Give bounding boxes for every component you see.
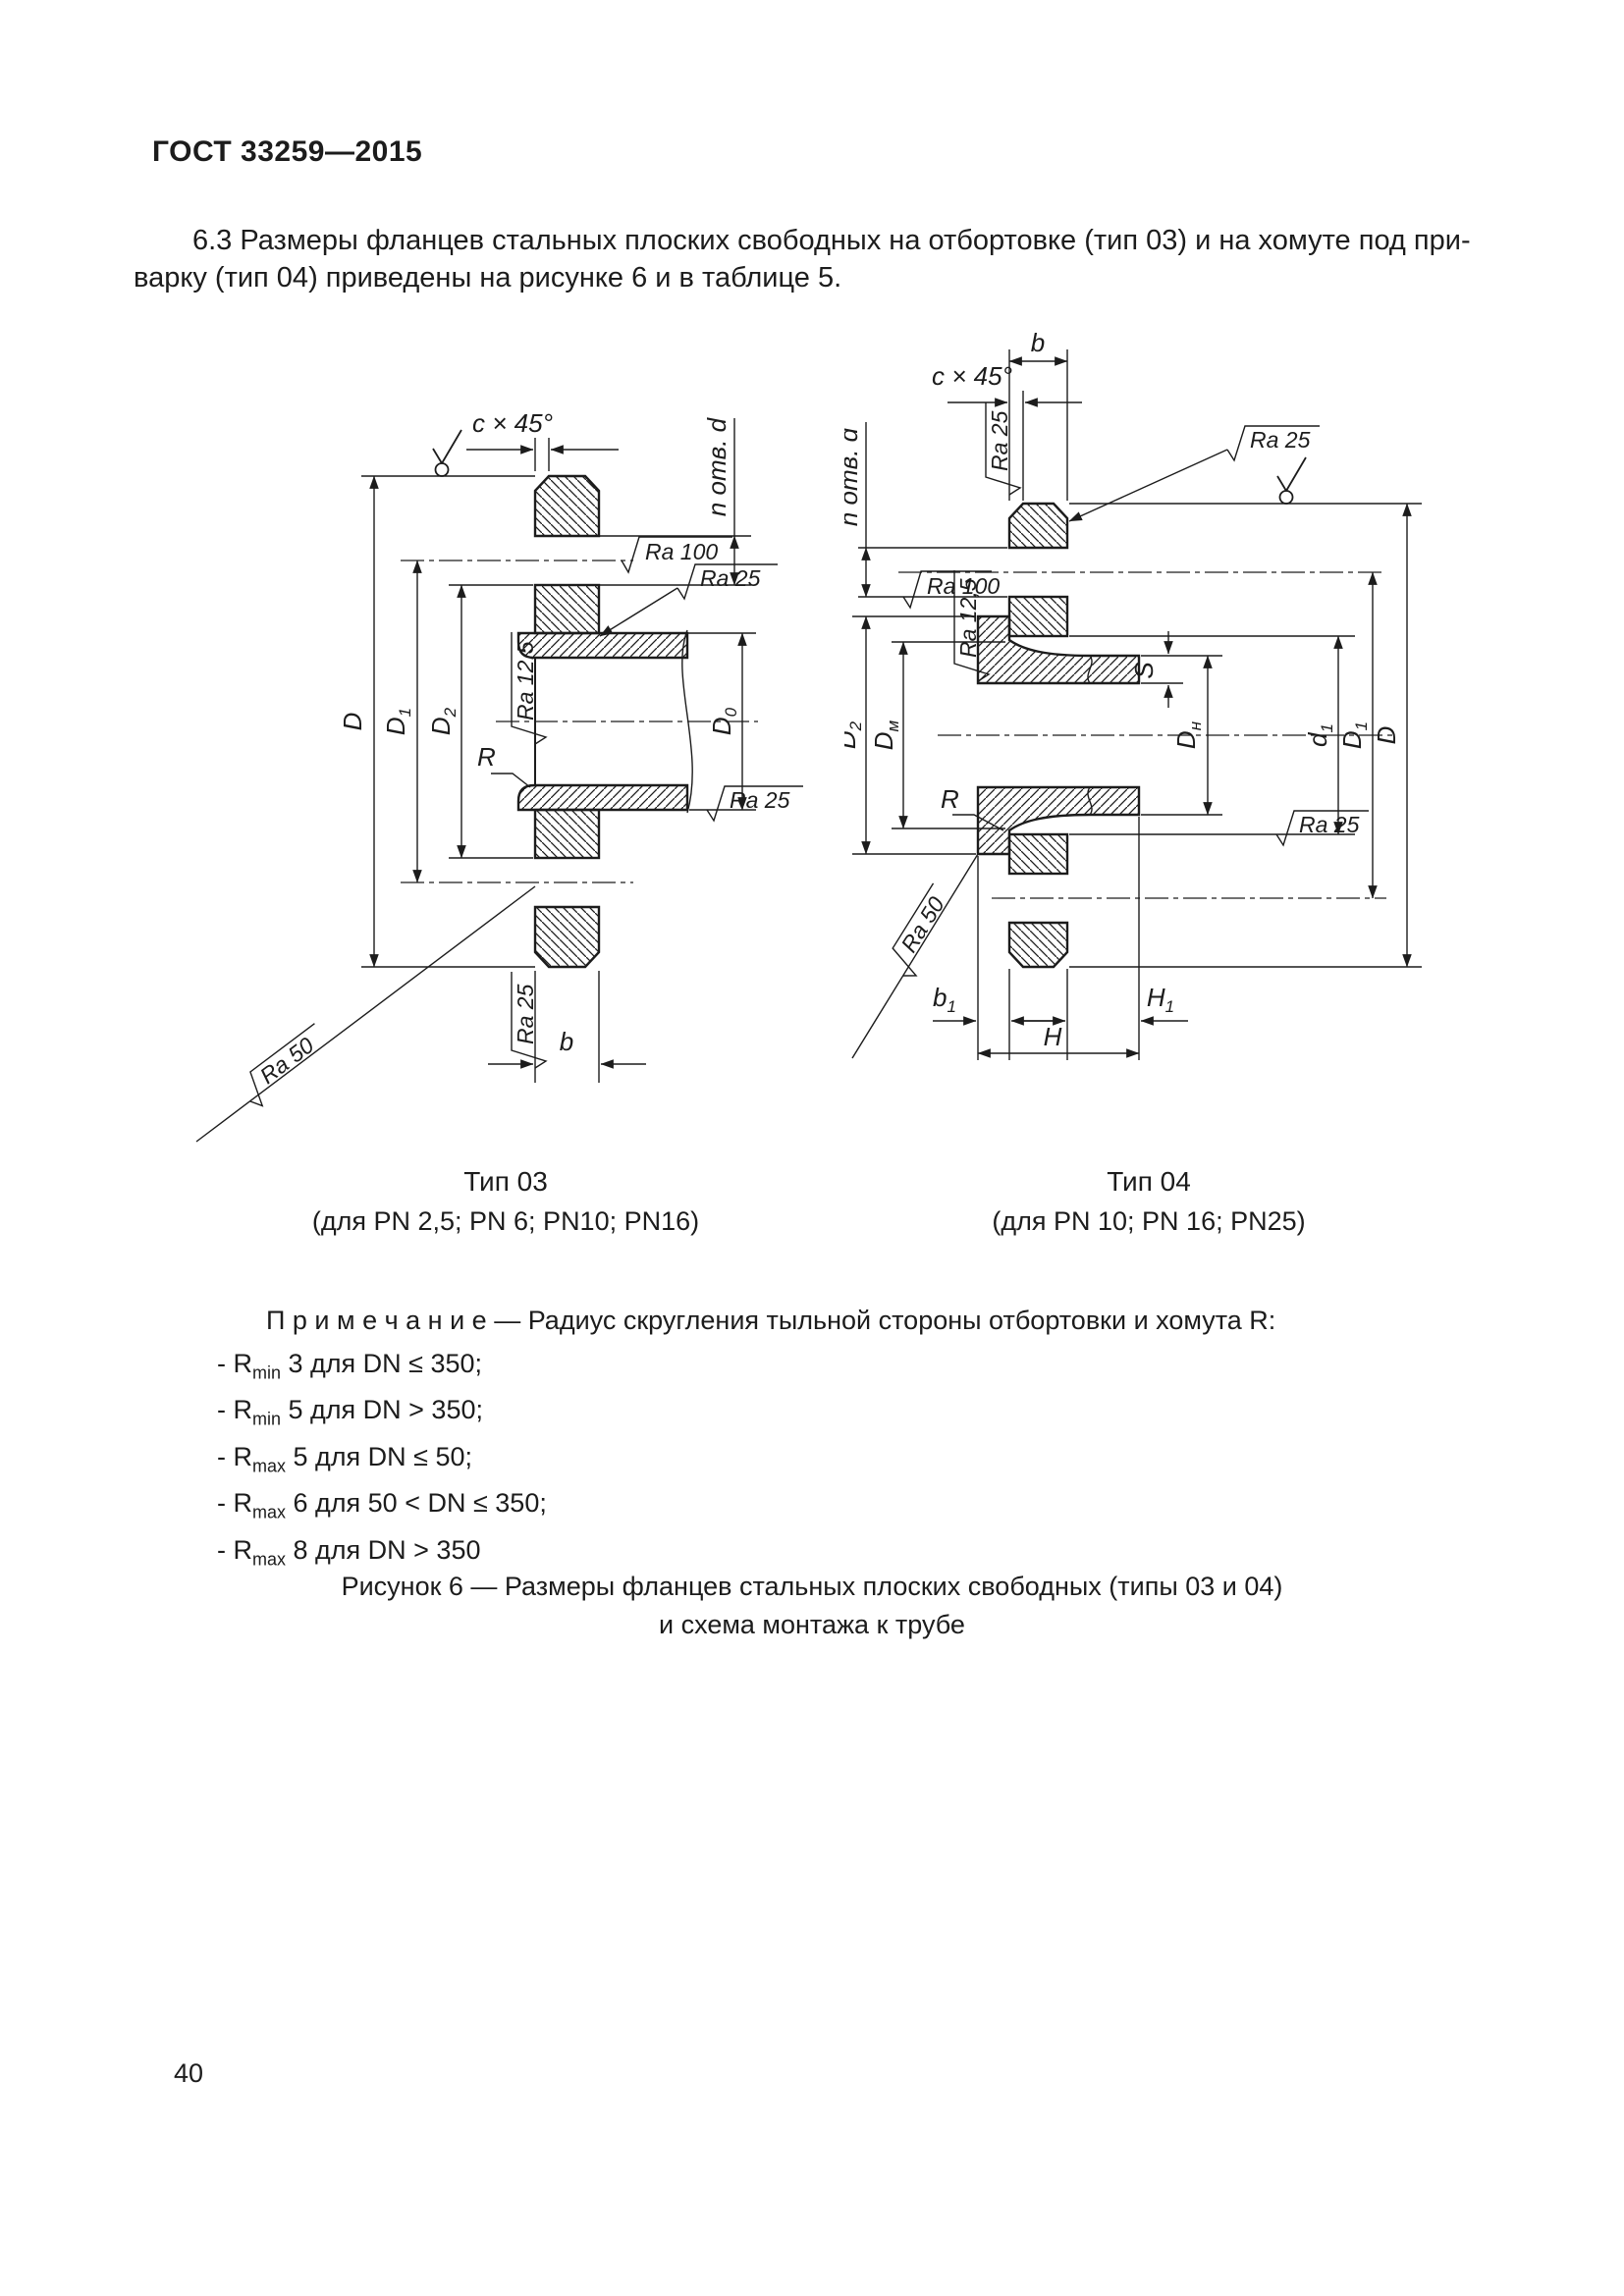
- dim-label-holes: n отв. d: [844, 426, 863, 526]
- ra25-flag-bottom: Ra 25: [512, 972, 546, 1068]
- note-item: - Rmin 3 для DN ≤ 350;: [217, 1345, 1275, 1391]
- type03-caption: Тип 03 (для PN 2,5; PN 6; PN10; PN16): [182, 1162, 830, 1241]
- dim-label-D1: D1: [381, 708, 414, 735]
- ra25-label-topright: Ra 25: [1250, 427, 1311, 453]
- dim-label-H: H: [1044, 1022, 1062, 1051]
- type04-title: Тип 04: [844, 1162, 1453, 1201]
- paragraph-line-2: варку (тип 04) приведены на рисунке 6 и …: [134, 259, 1508, 296]
- document-page: ГОСТ 33259—2015 6.3 Размеры фланцев стал…: [0, 0, 1624, 2296]
- type03-subtitle: (для PN 2,5; PN 6; PN10; PN16): [182, 1201, 830, 1241]
- dim-label-S: S: [1129, 662, 1159, 679]
- paragraph-6-3: 6.3 Размеры фланцев стальных плоских сво…: [134, 222, 1508, 296]
- dim-label-chamfer: c × 45°: [932, 361, 1012, 391]
- figure-caption: Рисунок 6 — Размеры фланцев стальных пло…: [0, 1568, 1624, 1644]
- dim-label-Dn: Dн: [1171, 721, 1205, 749]
- dimension-labels: D D1 d1 Dн Dм D2 S c × 45° b n отв. d R …: [844, 328, 1401, 1051]
- dim-label-b: b: [560, 1027, 573, 1056]
- roughness-marks: Ra 100 Ra 25 Ra 12,5 Ra 25 Ra 50: [196, 430, 803, 1142]
- dim-label-D2: D2: [844, 721, 865, 749]
- no-machining-icon: [1277, 457, 1306, 504]
- ra100-label: Ra 100: [645, 539, 718, 564]
- note-item: - Rmax 5 для DN ≤ 50;: [217, 1438, 1275, 1484]
- dim-label-chamfer: c × 45°: [472, 408, 553, 438]
- dim-label-D1: D1: [1337, 721, 1371, 749]
- dim-label-holes: n отв. d: [702, 416, 731, 516]
- dim-label-d1: d1: [1303, 723, 1336, 747]
- ra50-leader-line: [196, 886, 535, 1142]
- figure-caption-line-2: и схема монтажа к трубе: [0, 1606, 1624, 1644]
- dim-label-R: R: [941, 784, 959, 814]
- note-item: - Rmax 6 для 50 < DN ≤ 350;: [217, 1484, 1275, 1530]
- paragraph-line-1: 6.3 Размеры фланцев стальных плоских сво…: [134, 222, 1508, 259]
- type04-subtitle: (для PN 10; PN 16; PN25): [844, 1201, 1453, 1241]
- ra125-label: Ra 12,5: [955, 578, 981, 658]
- note-heading: П р и м е ч а н и е — Радиус скругления …: [266, 1306, 1275, 1336]
- ra25-label-mid: Ra 25: [1299, 812, 1360, 837]
- type03-title: Тип 03: [182, 1162, 830, 1201]
- dim-label-b: b: [1031, 328, 1045, 357]
- ra25-label-lower: Ra 25: [730, 787, 790, 813]
- type03-figure: Ra 100 Ra 25 Ra 12,5 Ra 25 Ra 50: [182, 312, 830, 1241]
- ra25-label-topleft: Ra 25: [987, 410, 1012, 471]
- dim-label-H1: H1: [1147, 983, 1174, 1016]
- type04-figure: Ra 100 Ra 25 Ra 25 Ra 12,5 Ra 25: [844, 312, 1453, 1241]
- page-number: 40: [174, 2058, 203, 2089]
- figure-6: Ra 100 Ra 25 Ra 12,5 Ra 25 Ra 50: [182, 312, 1453, 1241]
- dim-label-R: R: [477, 742, 496, 772]
- ra25-flag-topleft: Ra 25: [986, 402, 1020, 495]
- ra125-label: Ra 12,5: [513, 641, 538, 721]
- ra25-leader: [600, 588, 677, 636]
- note-block: П р и м е ч а н и е — Радиус скругления …: [217, 1306, 1275, 1577]
- dim-label-Dm: Dм: [869, 720, 902, 750]
- ra50-flag: Ra 50: [237, 1024, 336, 1110]
- ra25-leader: [1069, 450, 1227, 521]
- note-item: - Rmin 5 для DN > 350;: [217, 1391, 1275, 1437]
- figure-caption-line-1: Рисунок 6 — Размеры фланцев стальных пло…: [0, 1568, 1624, 1606]
- dim-label-b1: b1: [933, 983, 956, 1016]
- roughness-marks: Ra 100 Ra 25 Ra 25 Ra 12,5 Ra 25: [852, 402, 1369, 1058]
- dim-label-D0: D0: [707, 707, 740, 735]
- r-leader: [491, 774, 530, 787]
- dimension-lines: [852, 349, 1422, 1060]
- dim-label-D: D: [1372, 726, 1401, 745]
- type04-caption: Тип 04 (для PN 10; PN 16; PN25): [844, 1162, 1453, 1241]
- type03-drawing: Ra 100 Ra 25 Ra 12,5 Ra 25 Ra 50: [182, 312, 830, 1156]
- ra25-label-bottom: Ra 25: [513, 984, 538, 1044]
- no-machining-icon: [433, 430, 461, 476]
- dim-label-D2: D2: [426, 707, 460, 735]
- type04-drawing: Ra 100 Ra 25 Ra 25 Ra 12,5 Ra 25: [844, 312, 1453, 1156]
- dim-label-D: D: [338, 713, 367, 731]
- ra50-label: Ra 50: [255, 1032, 319, 1089]
- ra25-label-upper: Ra 25: [700, 565, 761, 591]
- page-title: ГОСТ 33259—2015: [152, 135, 422, 169]
- ra50-label: Ra 50: [895, 892, 949, 957]
